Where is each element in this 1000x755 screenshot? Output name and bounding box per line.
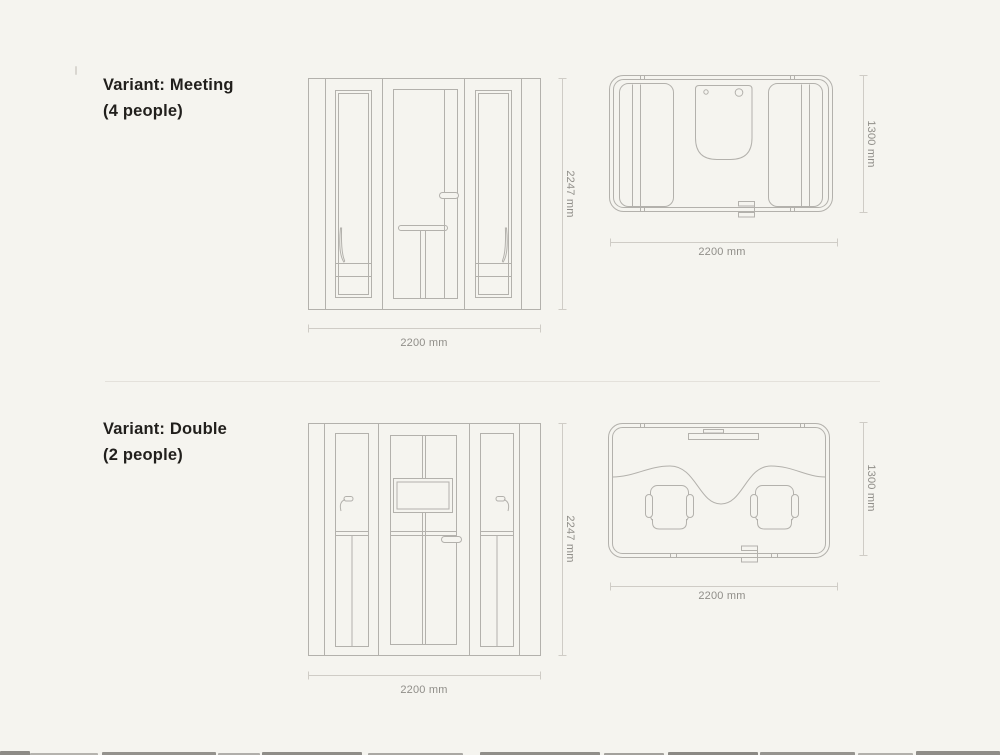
lamp-head [344, 497, 353, 502]
meeting-plan-table [696, 86, 753, 160]
door-handle [442, 537, 462, 543]
meeting-table-leg [421, 231, 426, 299]
double-front-frame [309, 424, 541, 656]
meeting-plan-right-bench [769, 84, 823, 207]
meeting-width-dimension-label: 2200 mm [400, 337, 447, 349]
next-section-top-edge [0, 747, 1000, 755]
double-height-dimension-label: 2247 mm [564, 515, 576, 562]
chair-front [653, 519, 687, 529]
meeting-depth-dimension-label: 1300 mm [865, 120, 877, 167]
double-depth-dimension-label: 1300 mm [865, 464, 877, 511]
double-plan-monitor [689, 430, 759, 440]
meeting-left-window-bench [336, 91, 372, 298]
meeting-door [394, 90, 459, 299]
lamp-icon [340, 500, 345, 512]
chair-armrest [687, 495, 694, 518]
double-plan-width-dimension-label: 2200 mm [698, 590, 745, 602]
chair-armrest [646, 495, 653, 518]
double-right-window [481, 434, 514, 647]
variant-double-title-line1: Variant: Double [103, 417, 227, 443]
meeting-front-frame [309, 79, 541, 310]
chair-front [758, 519, 792, 529]
lamp-head [496, 497, 505, 502]
chair-armrest [792, 495, 799, 518]
meeting-plan-door-handle [739, 202, 755, 218]
lamp-icon [504, 500, 509, 512]
monitor-icon [394, 479, 453, 513]
edge-segment [0, 751, 30, 755]
double-plan-left-chair [646, 486, 694, 530]
variant-double-title: Variant: Double (2 people) [103, 417, 227, 468]
meeting-height-dimension-label: 2247 mm [564, 170, 576, 217]
variant-double-title-line2: (2 people) [103, 443, 227, 469]
meeting-right-window-bench [476, 91, 512, 298]
meeting-table-top [399, 226, 448, 231]
double-width-dimension-label: 2200 mm [400, 684, 447, 696]
table-hole-small [704, 90, 708, 94]
meeting-top-plan-drawing: 1300 mm 2200 mm [600, 65, 890, 265]
double-front-elevation-drawing: 2247 mm 2200 mm [295, 410, 585, 702]
double-plan-shell [609, 424, 830, 558]
double-top-plan-drawing: 1300 mm 2200 mm [600, 410, 890, 610]
pod-dimensions-page: Variant: Meeting (4 people) [0, 0, 1000, 755]
meeting-plan-shell [610, 76, 833, 212]
variant-meeting-title: Variant: Meeting (4 people) [103, 73, 234, 124]
variant-meeting-title-line2: (4 people) [103, 99, 234, 125]
variant-meeting-title-line1: Variant: Meeting [103, 73, 234, 99]
chair-armrest [751, 495, 758, 518]
double-door [391, 436, 462, 645]
section-divider [105, 381, 880, 382]
dimension-lines [309, 424, 567, 680]
meeting-front-elevation-drawing: 2247 mm 2200 mm [295, 65, 585, 357]
meeting-plan-left-bench [620, 84, 674, 207]
edge-segment [916, 751, 1000, 755]
meeting-plan-width-dimension-label: 2200 mm [698, 246, 745, 258]
double-left-window [336, 434, 369, 647]
double-plan-right-chair [751, 486, 799, 530]
scrollbar-artifact [75, 66, 77, 75]
door-handle [440, 193, 459, 199]
table-hole-large [735, 89, 743, 97]
